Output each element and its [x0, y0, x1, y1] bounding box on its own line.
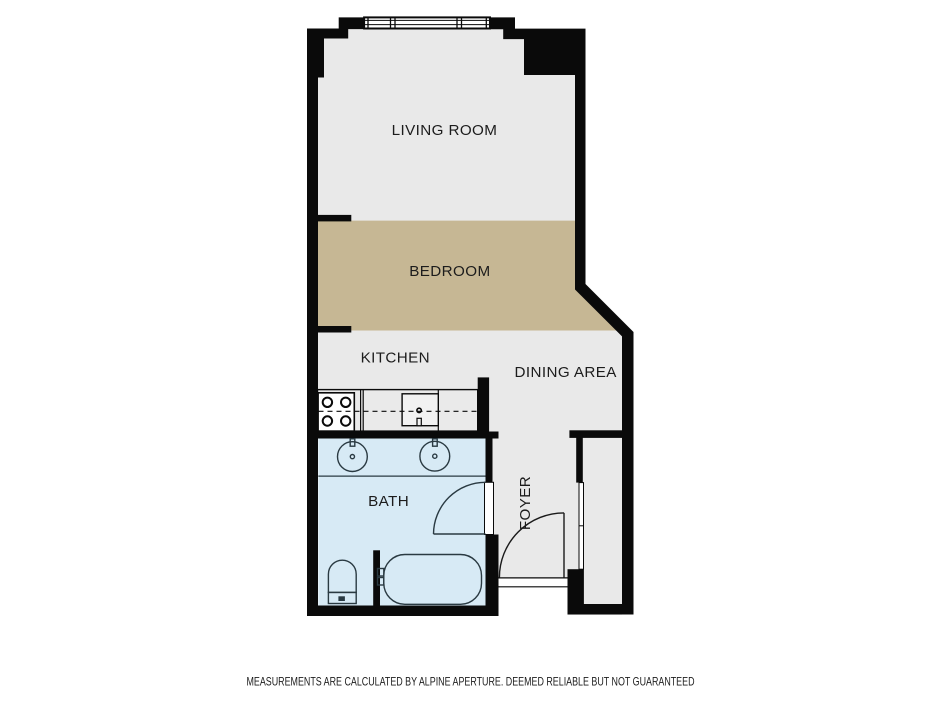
- svg-text:DINING AREA: DINING AREA: [515, 364, 618, 381]
- svg-text:BATH: BATH: [368, 493, 409, 510]
- svg-text:LIVING ROOM: LIVING ROOM: [392, 122, 498, 139]
- svg-text:MEASUREMENTS ARE CALCULATED BY: MEASUREMENTS ARE CALCULATED BY ALPINE AP…: [247, 674, 695, 688]
- svg-text:BEDROOM: BEDROOM: [409, 263, 490, 280]
- svg-text:FOYER: FOYER: [517, 476, 534, 530]
- svg-text:KITCHEN: KITCHEN: [361, 350, 430, 367]
